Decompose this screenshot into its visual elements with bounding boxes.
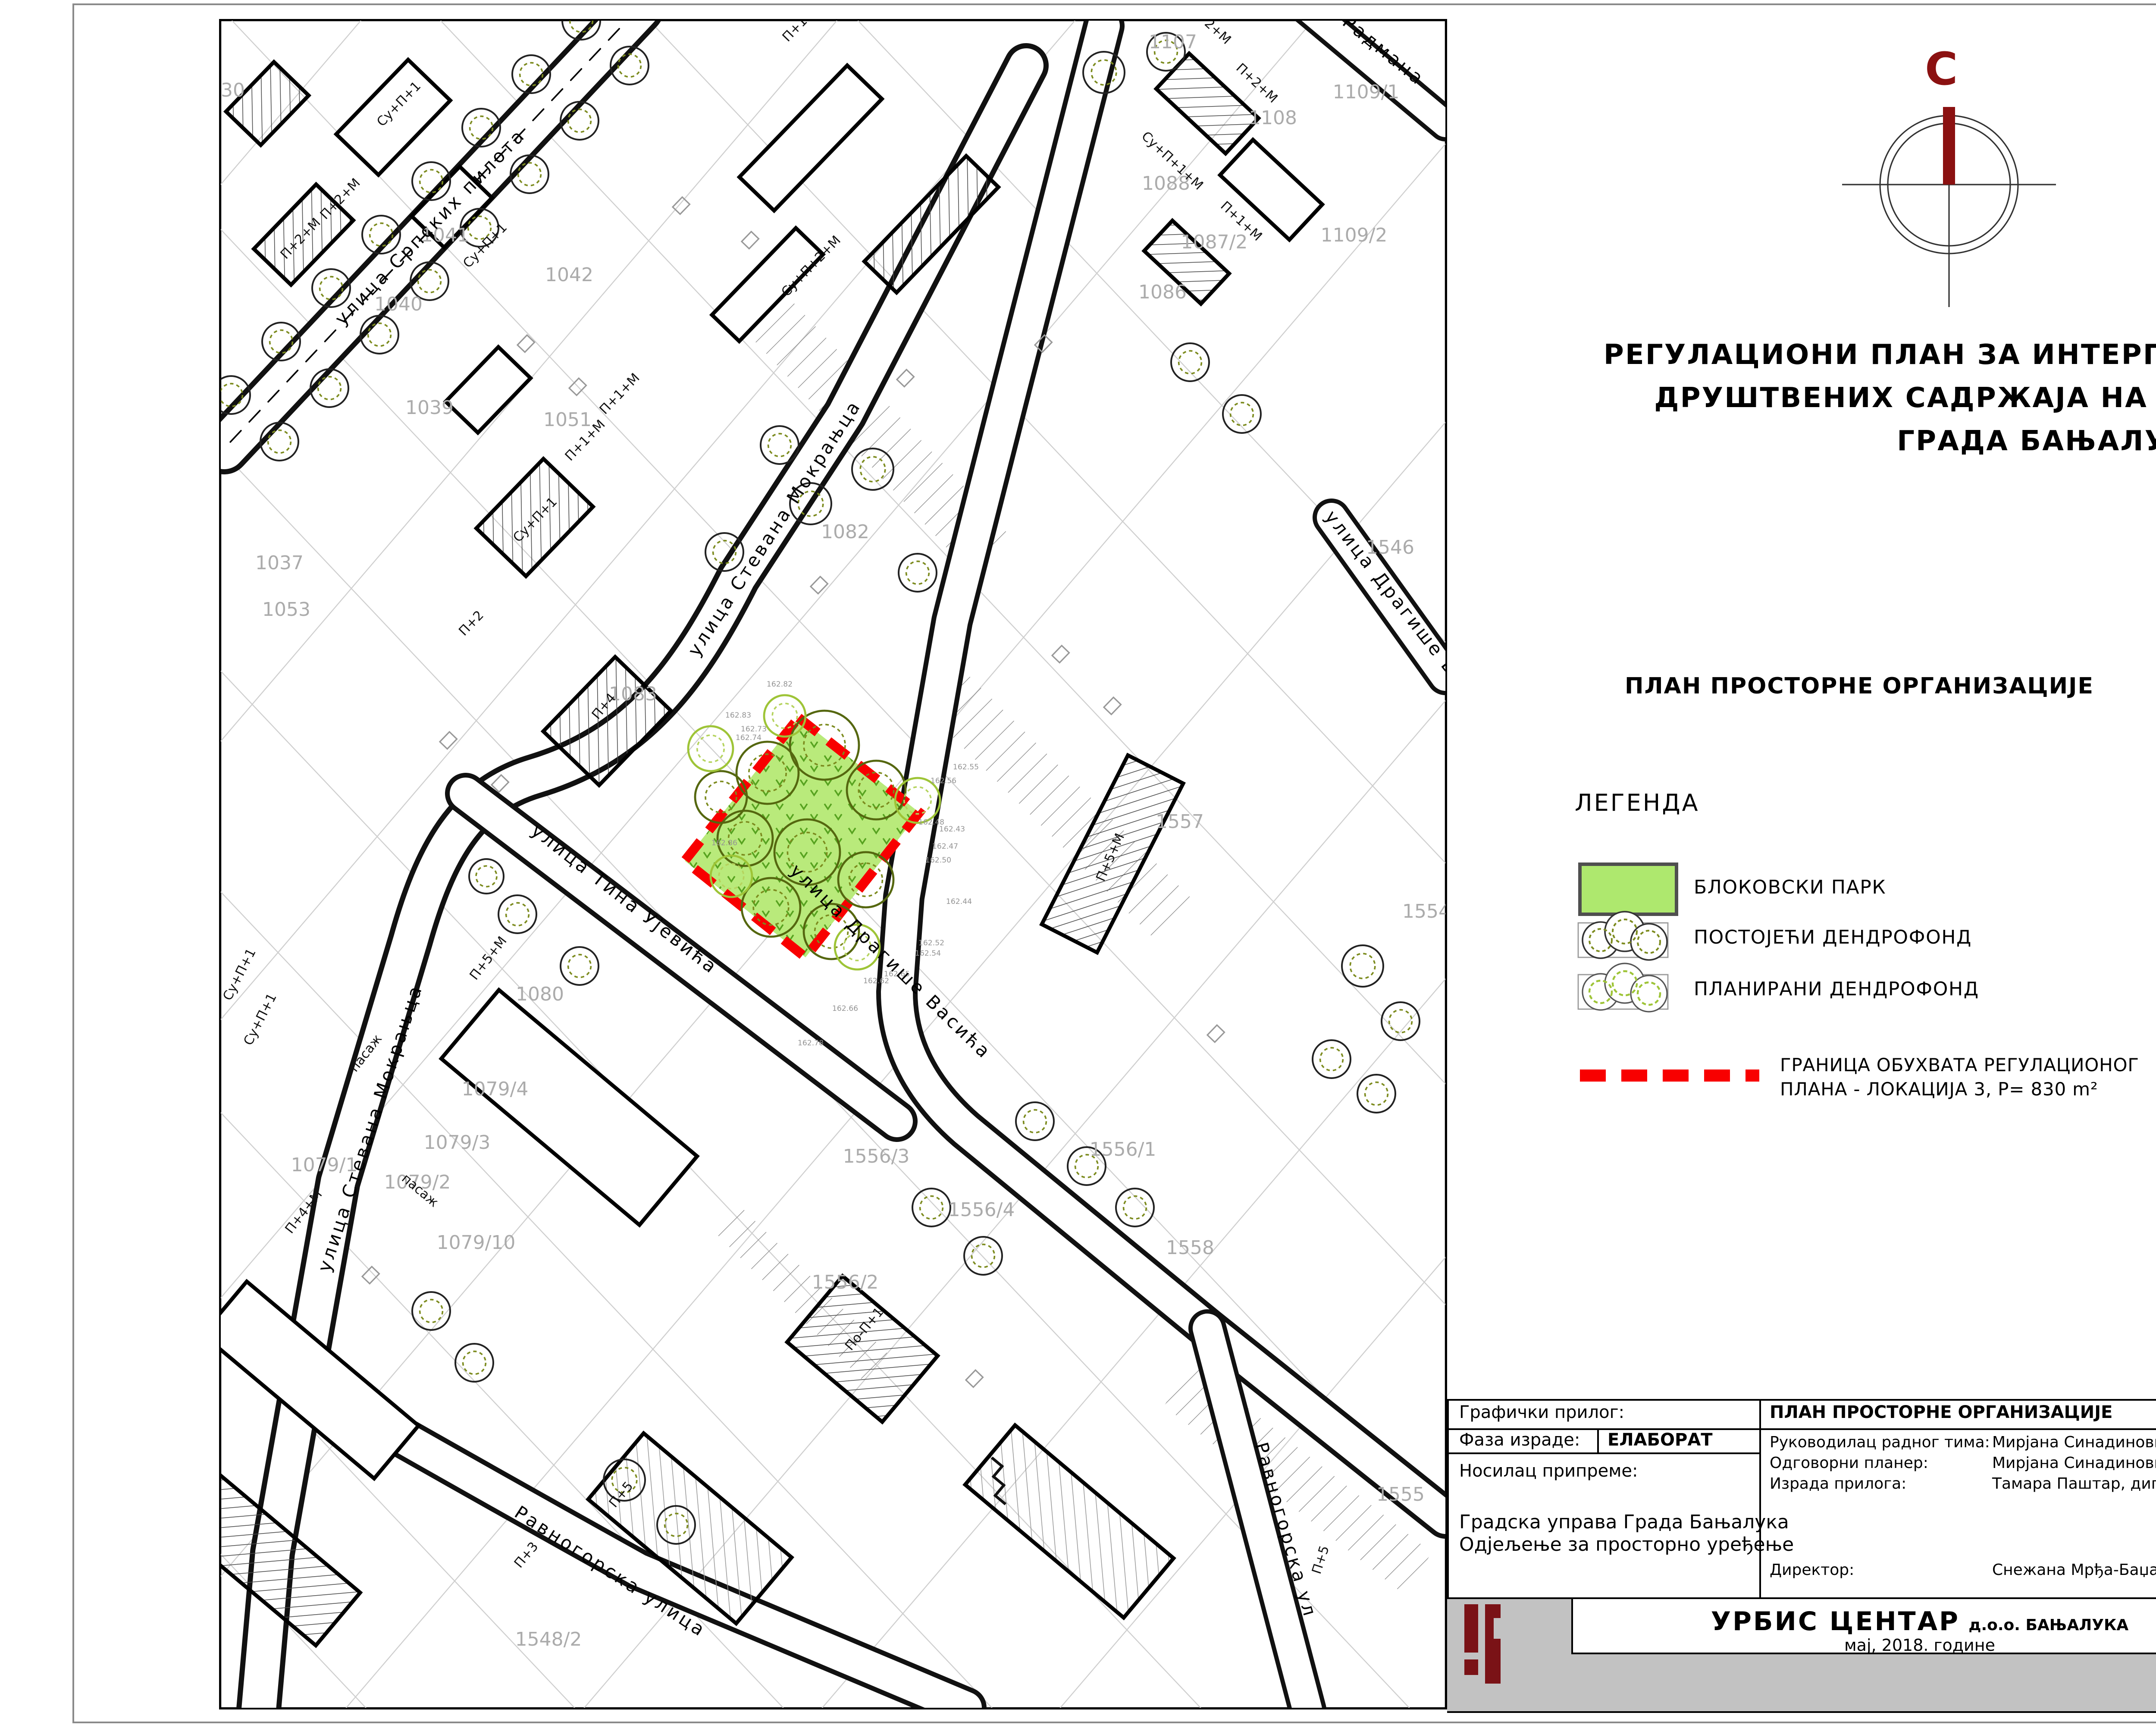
svg-text:162.47: 162.47 — [932, 842, 958, 851]
svg-text:1042: 1042 — [545, 264, 593, 286]
table-line — [1759, 1399, 1761, 1597]
svg-text:1556/1: 1556/1 — [1090, 1138, 1156, 1160]
legend-boundary-label-1: ГРАНИЦА ОБУХВАТА РЕГУЛАЦИОНОГ — [1780, 1054, 2139, 1078]
svg-text:162.78: 162.78 — [798, 1039, 824, 1048]
table-line — [1447, 1452, 1759, 1454]
plan-title: РЕГУЛАЦИОНИ ПЛАН ЗА ИНТЕРПОЛАЦИЈУ ОБЈЕКА… — [1571, 333, 2156, 462]
svg-text:1040: 1040 — [374, 293, 423, 315]
svg-text:1051: 1051 — [543, 409, 592, 431]
svg-text:1053: 1053 — [262, 599, 310, 621]
title-line-1: РЕГУЛАЦИОНИ ПЛАН ЗА ИНТЕРПОЛАЦИЈУ ОБЈЕКА… — [1571, 333, 2156, 376]
company-box: УРБИС ЦЕНТАР д.о.о. БАЊАЛУКА мај, 2018. … — [1571, 1597, 2156, 1654]
legend-park-swatch — [1578, 862, 1678, 916]
company-name: УРБИС ЦЕНТАР д.о.о. БАЊАЛУКА — [1573, 1604, 2156, 1637]
svg-text:162.73: 162.73 — [741, 725, 767, 734]
page: 162.83162.73162.74162.56162.55162.48162.… — [0, 0, 2156, 1725]
svg-text:162.44: 162.44 — [946, 897, 972, 906]
legend-boundary-label-2: ПЛАНА - ЛОКАЦИЈА 3, P= 830 m² — [1780, 1078, 2098, 1102]
svg-text:162.50: 162.50 — [925, 856, 951, 865]
company-name-suffix: д.о.о. БАЊАЛУКА — [1968, 1618, 2128, 1635]
svg-text:1557: 1557 — [1156, 811, 1204, 833]
compass-icon — [1828, 86, 2070, 310]
svg-text:1086: 1086 — [1138, 281, 1187, 303]
date-line: мај, 2018. године — [1573, 1637, 2156, 1656]
svg-text:162.74: 162.74 — [736, 734, 761, 742]
svg-text:162.62: 162.62 — [863, 977, 889, 985]
direktor-label: Директор: — [1770, 1563, 1854, 1580]
svg-text:1037: 1037 — [255, 552, 304, 574]
legend-existing-trees-icon — [1575, 911, 1678, 963]
direktor-value: Снежана Мрђа-Баџа, дипл.инж.арх. — [1992, 1563, 2156, 1580]
svg-text:162.86: 162.86 — [711, 839, 737, 847]
svg-text:1082: 1082 — [821, 521, 869, 543]
faza-izrade-label: Фаза израде: — [1459, 1432, 1580, 1451]
svg-text:1556/3: 1556/3 — [843, 1145, 910, 1167]
svg-text:1558: 1558 — [1166, 1237, 1214, 1259]
svg-text:162.56: 162.56 — [931, 777, 956, 785]
svg-text:1079/3: 1079/3 — [424, 1132, 491, 1154]
svg-text:1079/10: 1079/10 — [437, 1232, 516, 1254]
svg-text:1108: 1108 — [1249, 107, 1297, 129]
legend-park-label: БЛОКОВСКИ ПАРК — [1694, 876, 1886, 899]
svg-text:1039: 1039 — [405, 397, 454, 419]
svg-text:1109/2: 1109/2 — [1321, 224, 1388, 246]
row-label: Израда прилога: — [1770, 1477, 1906, 1494]
svg-text:162.83: 162.83 — [725, 711, 751, 720]
urbis-logo — [1459, 1603, 1511, 1689]
svg-text:162.43: 162.43 — [939, 825, 965, 834]
legend-existing-trees-label: ПОСТОЈЕЋИ ДЕНДРОФОНД — [1694, 926, 1972, 949]
legend-planned-trees-icon — [1575, 963, 1678, 1014]
svg-text:1555: 1555 — [1376, 1483, 1425, 1505]
graficki-prilog-label: Графички прилог: — [1459, 1404, 1624, 1423]
legend-heading: ЛЕГЕНДА — [1575, 790, 1700, 818]
title-line-2: ДРУШТВЕНИХ САДРЖАЈА НА УЖЕМ ПОДРУЧЈУ — [1571, 376, 2156, 419]
row-value: Тамара Паштар, дипл.инж.арх. — [1992, 1477, 2156, 1494]
svg-text:162.52: 162.52 — [918, 939, 944, 947]
svg-text:1554: 1554 — [1402, 900, 1447, 922]
legend-boundary-icon — [1580, 1069, 1759, 1082]
nosilac-label: Носилац припреме: — [1459, 1463, 1638, 1482]
svg-text:1080: 1080 — [516, 983, 564, 1005]
svg-text:1079/4: 1079/4 — [462, 1078, 529, 1100]
svg-text:162.54: 162.54 — [915, 949, 941, 958]
svg-text:1087/2: 1087/2 — [1181, 231, 1248, 253]
plan-name-header: ПЛАН ПРОСТОРНЕ ОРГАНИЗАЦИЈЕ — [1770, 1404, 2112, 1423]
nosilac-value-line2: Одјељење за просторно уређење — [1459, 1534, 1794, 1556]
row-value: Мирјана Синадиновић, дипл.инж.арх. — [1992, 1456, 2156, 1473]
svg-text:1556/2: 1556/2 — [812, 1271, 879, 1293]
table-line — [1447, 1428, 2156, 1430]
sheet-subtitle: ПЛАН ПРОСТОРНЕ ОРГАНИЗАЦИЈЕ — [1428, 674, 2156, 700]
row-label: Одговорни планер: — [1770, 1456, 1928, 1473]
svg-text:1030: 1030 — [219, 79, 245, 101]
svg-text:162.82: 162.82 — [767, 680, 793, 689]
faza-izrade-value: ЕЛАБОРАТ — [1608, 1432, 1713, 1451]
plan-sheet: 162.83162.73162.74162.56162.55162.48162.… — [0, 0, 2156, 1725]
company-name-main: УРБИС ЦЕНТАР — [1711, 1606, 1960, 1637]
row-label: Руководилац радног тима: — [1770, 1435, 1990, 1452]
svg-text:162.55: 162.55 — [953, 763, 979, 772]
svg-text:162.66: 162.66 — [832, 1004, 858, 1013]
svg-text:1548/2: 1548/2 — [515, 1628, 582, 1650]
nosilac-value-line1: Градска управа Града Бањалука — [1459, 1511, 1794, 1534]
nosilac-value: Градска управа Града Бањалука Одјељење з… — [1459, 1511, 1794, 1556]
table-line — [1597, 1428, 1599, 1452]
title-line-3: ГРАДА БАЊАЛУКЕ — [1571, 419, 2156, 462]
legend-planned-trees-label: ПЛАНИРАНИ ДЕНДРОФОНД — [1694, 978, 1979, 1000]
city-plan-map: 162.83162.73162.74162.56162.55162.48162.… — [219, 19, 1447, 1709]
row-value: Мирјана Синадиновић, дипл.инж.арх. — [1992, 1435, 2156, 1452]
svg-text:1109/1: 1109/1 — [1333, 81, 1400, 103]
svg-text:1107: 1107 — [1149, 31, 1197, 53]
svg-text:1556/4: 1556/4 — [948, 1199, 1015, 1221]
